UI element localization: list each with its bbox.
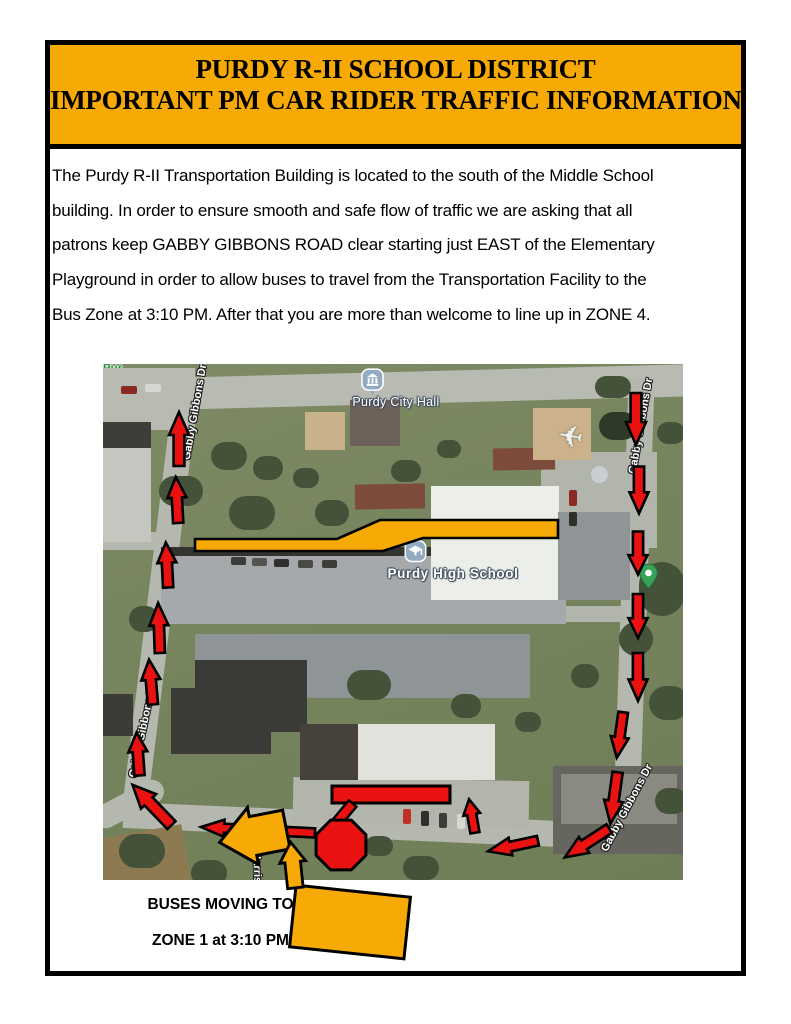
bus-route-highlight <box>195 520 558 551</box>
map-caption: BUSES MOVING TO ZONE 1 at 3:10 PM <box>138 887 303 959</box>
traffic-route-arrow <box>125 778 179 833</box>
traffic-route-arrow <box>629 594 648 638</box>
traffic-route-arrow <box>608 711 632 759</box>
body-line: patrons keep GABBY GIBBONS ROAD clear st… <box>52 228 741 263</box>
traffic-route-arrow <box>560 821 615 866</box>
body-line: Playground in order to allow buses to tr… <box>52 263 741 298</box>
traffic-route-arrow <box>629 653 648 701</box>
traffic-route-arrow <box>461 798 484 834</box>
body-line: Bus Zone at 3:10 PM. After that you are … <box>52 298 741 333</box>
flyer-frame: PURDY R-II SCHOOL DISTRICT IMPORTANT PM … <box>45 40 746 976</box>
flyer-page: PURDY R-II SCHOOL DISTRICT IMPORTANT PM … <box>0 0 791 1024</box>
title-banner: PURDY R-II SCHOOL DISTRICT IMPORTANT PM … <box>50 45 741 149</box>
traffic-route-arrow <box>127 732 149 776</box>
traffic-route-arrow <box>486 832 540 860</box>
title-line-2: IMPORTANT PM CAR RIDER TRAFFIC INFORMATI… <box>50 85 741 116</box>
transportation-facility-highlight <box>290 885 411 959</box>
title-line-1: PURDY R-II SCHOOL DISTRICT <box>50 45 741 85</box>
satellite-map: ✈ Gabby Gibbons DrGabby Gibbons DrGabby … <box>103 364 683 880</box>
traffic-route-arrow <box>169 412 189 466</box>
traffic-route-arrow <box>166 477 187 524</box>
route-overlay <box>103 364 683 880</box>
body-line: The Purdy R-II Transportation Building i… <box>52 159 741 194</box>
traffic-route-arrow <box>601 771 627 825</box>
caption-line-1: BUSES MOVING TO <box>138 887 303 923</box>
traffic-route-arrow <box>630 467 649 514</box>
traffic-route-arrow <box>140 659 163 705</box>
traffic-route-arrow <box>626 393 646 445</box>
traffic-route-arrow <box>156 542 177 588</box>
traffic-route-arrow <box>149 603 170 654</box>
stop-sign-shape <box>316 820 366 870</box>
traffic-route-arrow <box>629 532 648 575</box>
body-line: building. In order to ensure smooth and … <box>52 194 741 229</box>
body-paragraph: The Purdy R-II Transportation Building i… <box>52 159 741 333</box>
caption-line-2: ZONE 1 at 3:10 PM <box>138 923 303 959</box>
buses-direction-arrow <box>214 801 292 871</box>
